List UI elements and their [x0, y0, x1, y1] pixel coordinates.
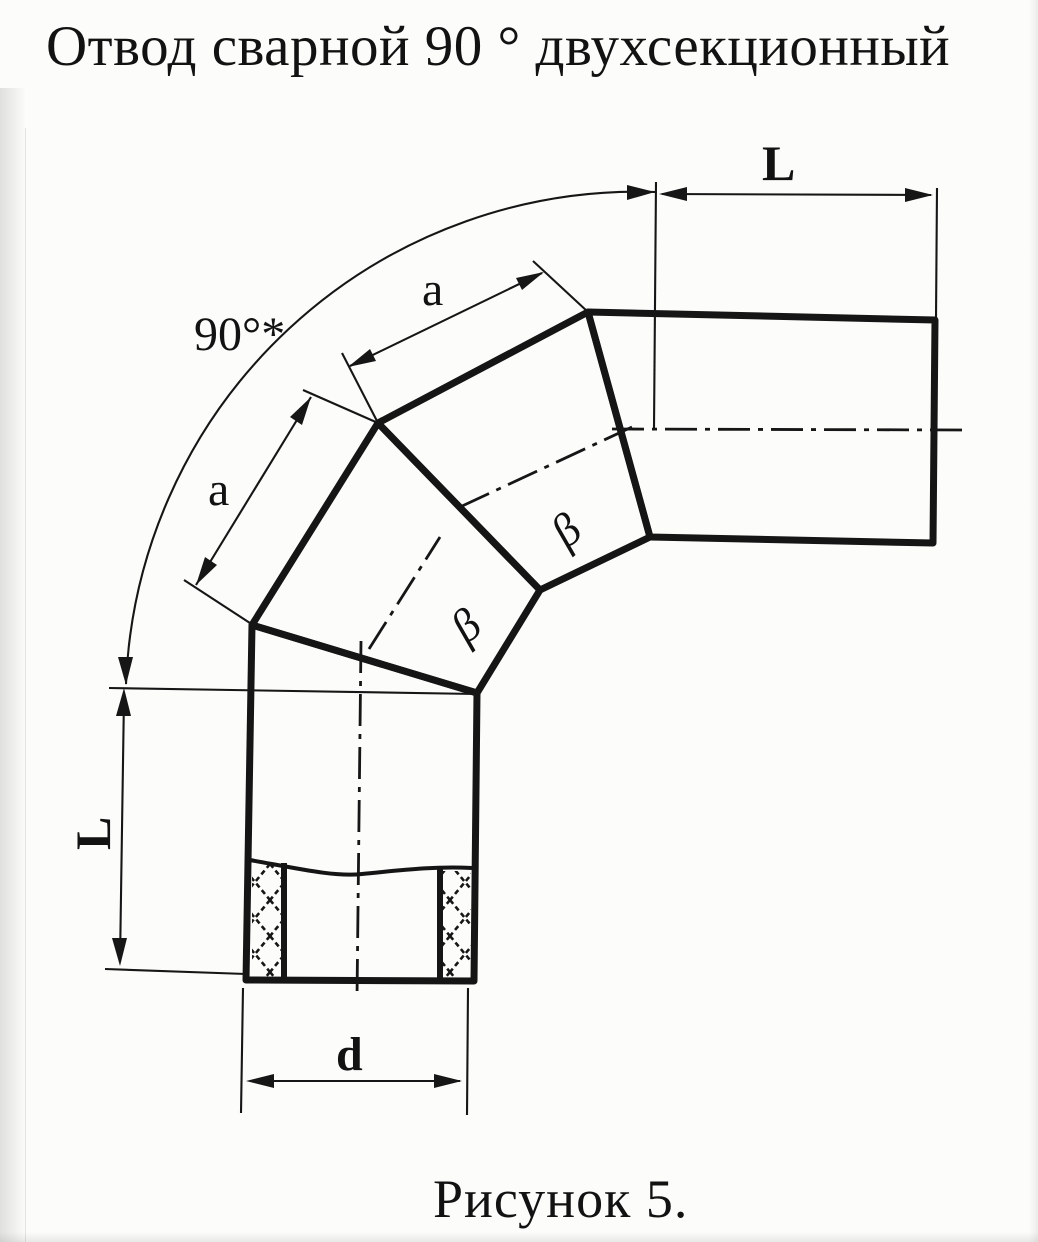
arrow-L-left-top — [116, 688, 131, 716]
arrow-arc-bottom — [118, 657, 133, 685]
dim-label-a-lower: a — [208, 463, 229, 516]
wall-hatch-right — [443, 871, 471, 979]
extension-line-elbow-left — [109, 688, 476, 694]
centerline-upper-wedge — [460, 427, 632, 507]
weld-bevel-label-upper: β — [540, 503, 591, 557]
arrow-a-lower-bottom — [196, 557, 217, 585]
lower-wedge-section-outline — [252, 423, 540, 693]
arrow-L-top-right — [905, 188, 933, 202]
extension-line-elbow-top — [654, 182, 656, 428]
scanned-drawing-page: Отвод сварной 90 ° двухсекционный — [0, 0, 1038, 1242]
arrow-arc-top — [627, 185, 655, 200]
extension-line-a-lower-top — [303, 390, 378, 423]
extension-line-pipe-end-bottom — [105, 969, 246, 974]
arrow-d-right — [434, 1074, 462, 1088]
extension-line-pipe-end-right — [936, 188, 937, 319]
dim-label-L-left: L — [65, 817, 121, 850]
centerline-right-pipe — [612, 429, 964, 430]
arrow-a-upper-left — [348, 349, 376, 367]
wall-hatch-left — [252, 864, 281, 977]
extension-line-d-left — [241, 988, 243, 1113]
dim-label-a-upper: a — [422, 263, 443, 316]
arrow-L-top-left — [659, 187, 687, 201]
dim-label-angle: 90°* — [194, 308, 285, 361]
arrow-L-left-bottom — [112, 938, 127, 966]
centerline-bottom-pipe — [357, 641, 361, 998]
arrow-d-left — [246, 1074, 274, 1088]
dim-label-L-top: L — [762, 135, 795, 191]
extension-line-d-right — [467, 988, 468, 1115]
elbow-drawing: 90°* a a L L d β β — [0, 0, 1038, 1242]
extension-line-a-upper-right — [533, 261, 588, 312]
extension-line-a-lower-bottom — [184, 580, 253, 625]
dim-label-d: d — [336, 1028, 363, 1081]
centerline-lower-wedge — [369, 537, 440, 649]
upper-wedge-section-outline — [378, 312, 650, 590]
arrow-a-lower-top — [290, 397, 311, 425]
weld-bevel-label-lower: β — [440, 599, 491, 653]
arrow-a-upper-right — [516, 272, 544, 290]
dim-line-L-top — [662, 194, 931, 195]
right-pipe-outline — [588, 312, 935, 543]
figure-caption: Рисунок 5. — [433, 1168, 688, 1230]
